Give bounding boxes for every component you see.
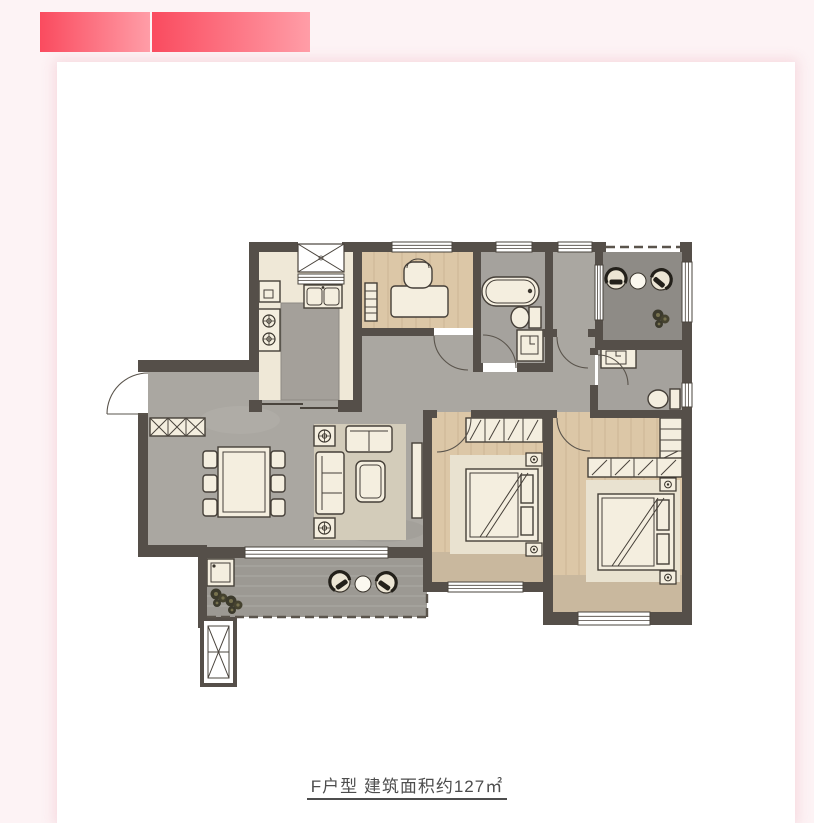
- window: [578, 612, 650, 625]
- desk: [391, 286, 448, 317]
- plant-side-table: [314, 426, 335, 446]
- window: [595, 265, 603, 320]
- toilet: [511, 307, 541, 328]
- double-bed: [450, 455, 543, 554]
- vanity-sink: [601, 348, 636, 368]
- entry-door-swing: [107, 372, 148, 414]
- dining-table: [218, 447, 270, 517]
- fridge: [259, 281, 280, 302]
- stove: [258, 309, 280, 351]
- double-bed: [586, 480, 680, 582]
- window: [496, 242, 532, 252]
- window: [298, 274, 344, 284]
- bookshelf: [365, 283, 377, 321]
- window: [558, 242, 592, 252]
- tv-console: [412, 443, 422, 518]
- wardrobe: [466, 418, 543, 442]
- window: [392, 242, 452, 252]
- outdoor-table: [630, 273, 646, 289]
- plant-side-table: [314, 518, 335, 538]
- window: [448, 582, 523, 592]
- window: [245, 547, 388, 558]
- desk-chair: [404, 259, 432, 288]
- washing-machine: [207, 559, 234, 586]
- loveseat: [346, 426, 392, 452]
- flue-shaft: [298, 244, 344, 272]
- outdoor-chair: [606, 269, 626, 289]
- window: [682, 262, 692, 322]
- floorplan-drawing: [0, 0, 814, 823]
- north-balcony: [603, 252, 682, 340]
- sofa: [316, 452, 344, 514]
- caption-text: F户型 建筑面积约127㎡: [307, 777, 507, 800]
- window: [682, 383, 692, 407]
- floorplan-caption: F户型 建筑面积约127㎡: [0, 772, 814, 797]
- outdoor-table: [355, 576, 371, 592]
- utility-shaft: [202, 619, 235, 685]
- bathtub: [482, 277, 539, 306]
- kitchen-sink: [304, 285, 342, 308]
- shoe-cabinet: [150, 418, 205, 436]
- toilet: [648, 389, 680, 409]
- coffee-table: [356, 461, 385, 502]
- vanity-sink: [517, 330, 543, 361]
- page-background: { "page": { "background": "#fdf3f5", "ca…: [0, 0, 814, 823]
